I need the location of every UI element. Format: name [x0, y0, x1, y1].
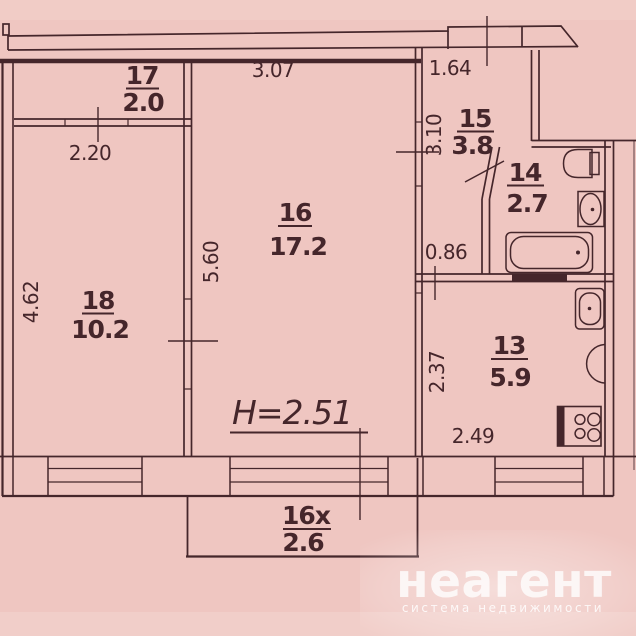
room-18-area: 10.2 — [71, 315, 129, 344]
room-16-number: 16 — [279, 198, 312, 227]
room-14-area: 2.7 — [506, 189, 547, 218]
dim-hall-lower-width: 0.86 — [425, 240, 468, 264]
watermark: неагент система недвижимости — [360, 530, 636, 636]
balcony-16x-area: 2.6 — [282, 528, 324, 557]
dim-hall-width: 1.64 — [429, 56, 472, 80]
room-16-area: 17.2 — [269, 232, 327, 261]
room-13-number: 13 — [493, 331, 526, 360]
dim-room16-width: 3.07 — [252, 58, 295, 82]
ceiling-height-text: H=2.51 — [232, 393, 352, 432]
dim-room18-depth: 4.62 — [19, 281, 43, 324]
dim-hall-depth: 3.10 — [422, 114, 446, 157]
room-13-area: 5.9 — [489, 363, 530, 392]
room-15-number: 15 — [459, 104, 492, 133]
room-17-area: 2.0 — [122, 88, 164, 117]
floor-plan: 17 2.0 16 17.2 18 10.2 15 3.8 14 2.7 13 … — [0, 0, 636, 636]
room-14-number: 14 — [509, 158, 542, 187]
door-threshold — [512, 274, 567, 283]
room-15-area: 3.8 — [451, 131, 492, 160]
ceiling-height-note: H=2.51 — [230, 393, 368, 433]
dim-room16-depth: 5.60 — [199, 241, 223, 284]
dim-room17-width: 2.20 — [69, 141, 112, 165]
room-18-number: 18 — [82, 286, 115, 315]
dim-kitchen-width: 2.49 — [452, 424, 495, 448]
watermark-tagline: система недвижимости — [402, 601, 604, 615]
balcony-16x-number: 16x — [282, 501, 331, 530]
paper-shade-top — [0, 0, 636, 20]
dim-kitchen-depth: 2.37 — [425, 351, 449, 394]
room-17-number: 17 — [126, 61, 159, 90]
